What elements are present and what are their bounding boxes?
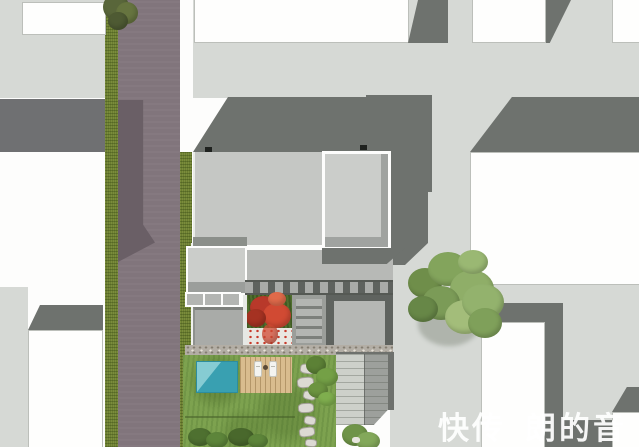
garage-panel bbox=[223, 294, 239, 305]
watermark-text-left: 快传 bbox=[438, 411, 506, 447]
neighbor-roof-west bbox=[28, 330, 103, 447]
grass-verge-left bbox=[105, 0, 118, 447]
west-wing-roof bbox=[193, 307, 243, 350]
garden-rock bbox=[352, 437, 360, 443]
neighbor-shadow-west bbox=[28, 305, 103, 330]
stepping-stone bbox=[305, 439, 318, 447]
shrub bbox=[248, 434, 268, 447]
garage-skylight-panels bbox=[185, 292, 241, 307]
lounge-chair bbox=[254, 361, 262, 377]
gravel-yard-wall bbox=[388, 352, 394, 410]
east-wing-roof-plane bbox=[334, 301, 385, 345]
roof-clip-left bbox=[205, 147, 212, 152]
stepping-stone bbox=[298, 402, 315, 413]
lounge-chair bbox=[269, 361, 277, 377]
side-table bbox=[263, 365, 268, 370]
maple-canopy bbox=[246, 309, 266, 327]
site-plan-render: 快传 朗的音 bbox=[0, 0, 639, 447]
maple-canopy bbox=[268, 292, 286, 306]
maple-petals bbox=[262, 324, 278, 344]
roof-terrace-box-small bbox=[186, 246, 247, 295]
street-tree-canopy bbox=[458, 250, 488, 274]
courtyard-steps bbox=[296, 299, 322, 343]
shrub bbox=[206, 432, 228, 447]
roof-clip-right bbox=[360, 145, 367, 150]
roof-terrace-box-large bbox=[322, 151, 391, 250]
hedge-line bbox=[185, 416, 295, 418]
swimming-pool bbox=[196, 361, 238, 393]
neighbor-roof-top-center bbox=[194, 0, 409, 43]
gravel-yard bbox=[336, 352, 390, 425]
stepping-stone bbox=[303, 415, 316, 426]
wood-deck bbox=[240, 357, 292, 393]
street-tree-canopy bbox=[468, 308, 502, 338]
courtyard-wall bbox=[243, 295, 247, 350]
neighbor-roof-top-right bbox=[612, 0, 639, 43]
neighbor-roof-east bbox=[470, 152, 639, 285]
watermark: 快传 朗的音 bbox=[430, 409, 639, 447]
neighbor-roof-top-left bbox=[22, 2, 106, 35]
roof-edge-strip bbox=[193, 237, 247, 246]
pergola-band bbox=[245, 280, 393, 295]
garage-panel bbox=[187, 294, 203, 305]
garage-panel bbox=[205, 294, 221, 305]
verge-tree-canopy bbox=[108, 12, 128, 30]
shrub bbox=[318, 392, 336, 406]
plaza-strip-left bbox=[0, 287, 28, 447]
cross-road bbox=[0, 99, 105, 152]
watermark-text-right: 朗的音 bbox=[525, 411, 627, 447]
neighbor-roof-top-mid bbox=[472, 0, 546, 43]
street-tree-canopy bbox=[408, 296, 438, 322]
